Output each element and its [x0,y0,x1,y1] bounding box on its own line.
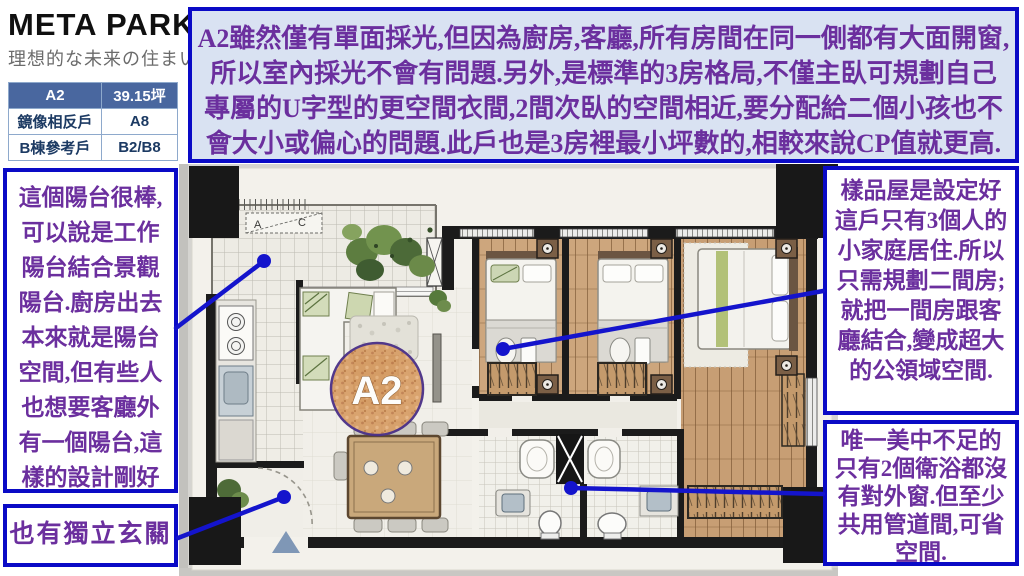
sink-2 [640,486,678,516]
ref-unit-value: B2/B8 [101,135,177,161]
note-overview-line3: 專屬的U字型的更空間衣間,2間次臥的空間相近,要分配給二個小孩也不 [192,91,1015,126]
bath-fixture [588,440,620,478]
railing-hatch [238,199,308,210]
kitchen-cabinet [219,420,253,460]
wardrobe [598,363,646,395]
bath-fixture [520,440,554,478]
kitchen-sink [219,366,253,416]
note-overview-line1: A2雖然僅有單面採光,但因為廚房,客廳,所有房間在同一側都有大面開窗, [192,21,1015,56]
table-row: B棟參考戶 B2/B8 [9,135,178,161]
unit-circle-label: A2 [331,343,423,435]
logo-block: META PARK 理想的な未来の住まい [8,8,198,71]
dining-set [334,422,448,532]
table-header-row: A2 39.15坪 [9,83,178,109]
ac-pad-marker: A C [246,213,322,233]
chair [610,338,630,364]
unit-area: 39.15坪 [101,83,177,109]
pipe-shaft-bath [556,434,584,484]
marker-a-label: A [254,219,262,231]
mirror-unit-label: 鏡像相反戶 [9,109,102,135]
hallway [479,401,677,429]
unit-info-table: A2 39.15坪 鏡像相反戶 A8 B棟參考戶 B2/B8 [8,82,178,161]
mirror-unit-value: A8 [101,109,177,135]
kitchen-fixtures [216,300,256,462]
master-closet [688,486,782,518]
tv-console [433,334,441,402]
side-closet [782,374,804,446]
stove [219,306,253,360]
floorplan-image: A C [179,164,838,576]
note-overview-line2: 所以室內採光不會有問題.另外,是標準的3房格局,不僅主臥可規劃自己 [192,56,1015,91]
note-bathroom: 唯一美中不足的只有2個衛浴都沒有對外窗.但至少共用管道間,可省空間. [823,420,1019,566]
marker-c-label: C [298,217,306,229]
toilet-1 [539,511,561,539]
wardrobe [488,363,536,395]
unit-code: A2 [9,83,102,109]
note-balcony: 這個陽台很棒,可以說是工作陽台結合景觀陽台.廚房出去本來就是陽台空間,但有些人也… [3,168,178,493]
dresser [521,338,536,364]
chair [496,338,516,364]
sink-1 [496,490,530,516]
note-overview: A2雖然僅有單面採光,但因為廚房,客廳,所有房間在同一側都有大面開窗, 所以室內… [188,7,1019,163]
table-row: 鏡像相反戶 A8 [9,109,178,135]
note-sample-house: 樣品屋是設定好這戶只有3個人的小家庭居住.所以只需規劃二間房;就把一間房跟客廳結… [823,166,1019,415]
unit-label-text: A2 [351,369,402,413]
dining-table [348,436,440,518]
ref-unit-label: B棟參考戶 [9,135,102,161]
note-overview-line4: 會大小或偏心的問題.此戶也是3房裡最小坪數的,相較來說CP值就更高. [192,126,1015,161]
note-entry: 也有獨立玄關 [3,504,178,567]
dresser [635,338,650,364]
brand-tagline: 理想的な未来の住まい [8,45,198,71]
brand-logo: META PARK [8,8,198,42]
